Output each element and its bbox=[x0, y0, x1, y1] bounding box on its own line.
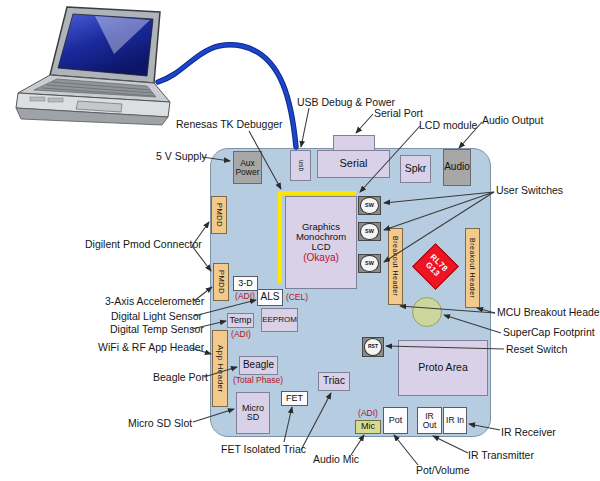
label-lcd-module: LCD module bbox=[419, 119, 477, 131]
label-audio-mic: Audio Mic bbox=[313, 453, 359, 465]
label-3axis-accelerometer: 3-Axis Accelerometer bbox=[105, 295, 204, 307]
beagle-connector: Beagle bbox=[239, 356, 278, 375]
temp-sensor: Temp bbox=[227, 313, 254, 328]
label-ir-receiver: IR Receiver bbox=[501, 426, 556, 438]
fet: FET bbox=[281, 391, 308, 406]
label-pot-volume-arrow bbox=[394, 435, 418, 465]
label-pot-volume: Pot/Volume bbox=[416, 464, 470, 476]
label-beagle-port: Beagle Port bbox=[153, 371, 208, 383]
breakout-header-1: Breakout Header bbox=[388, 228, 403, 305]
aux-power: Aux Power bbox=[233, 151, 262, 184]
note-cel-als: (CEL) bbox=[252, 292, 342, 302]
label-usb-debug-power-arrow bbox=[301, 108, 309, 147]
label-mcu-breakout-headers: MCU Breakout Headers bbox=[497, 306, 600, 318]
laptop-illustration bbox=[16, 7, 170, 125]
label-digital-temp-sensor: Digital Temp Sensor bbox=[110, 323, 204, 335]
diagram-canvas: usbSerialSpkrAudioAux PowerPMDDPMDDApp H… bbox=[0, 0, 600, 481]
mic: Mic bbox=[355, 420, 381, 434]
usb-cable bbox=[158, 45, 296, 147]
note-adi-mic: (ADI) bbox=[323, 408, 413, 418]
triac: Triac bbox=[318, 372, 350, 391]
ir-in: IR In bbox=[443, 407, 467, 434]
audio-jack: Audio bbox=[443, 149, 471, 186]
proto-area: Proto Area bbox=[398, 340, 488, 396]
note-adi-temp: (ADI) bbox=[196, 329, 286, 339]
user-switch-3: SW bbox=[358, 254, 381, 273]
label-serial-port-arrow bbox=[356, 114, 373, 133]
label-5v-supply: 5 V Supply bbox=[156, 150, 207, 162]
reset-button: RST bbox=[362, 337, 384, 357]
label-wifi-rf-app-header: WiFi & RF App Header bbox=[98, 341, 204, 353]
app-header: App Header bbox=[212, 330, 228, 407]
label-ir-transmitter-arrow bbox=[433, 436, 468, 453]
usb-connector: usb bbox=[290, 150, 311, 181]
micro-sd: Micro SD bbox=[236, 392, 270, 434]
label-ir-transmitter: IR Transmitter bbox=[468, 449, 534, 461]
label-serial-port: Serial Port bbox=[374, 107, 423, 119]
usb-cable-outline bbox=[158, 45, 296, 147]
label-audio-output: Audio Output bbox=[482, 114, 543, 126]
label-digital-light-sensor: Digital Light Sensor bbox=[111, 310, 202, 322]
serial-connector: Serial bbox=[317, 150, 390, 178]
ir-out: IR Out bbox=[417, 407, 442, 434]
label-supercap-footprint: SuperCap Footprint bbox=[503, 326, 595, 338]
serial-port-tab bbox=[333, 135, 375, 151]
label-reset-switch: Reset Switch bbox=[506, 343, 567, 355]
label-renesas-tk-debugger: Renesas TK Debugger bbox=[176, 118, 283, 130]
label-audio-mic-arrow bbox=[351, 435, 364, 455]
lcd: GraphicsMonochrom LCD(Okaya) bbox=[285, 196, 357, 289]
accelerometer-3d: 3-D bbox=[233, 276, 258, 291]
user-switch-1: SW bbox=[358, 196, 381, 215]
breakout-header-2: Breakout Header bbox=[465, 228, 480, 308]
label-user-switches: User Switches bbox=[496, 184, 563, 196]
speaker: Spkr bbox=[400, 155, 431, 183]
label-digilent-pmod: Digilent Pmod Connector bbox=[85, 238, 202, 250]
pmod-connector-1: PMDD bbox=[211, 196, 227, 234]
label-fet-isolated-triac: FET Isolated Triac bbox=[221, 443, 306, 455]
label-micro-sd-slot: Micro SD Slot bbox=[128, 417, 192, 429]
supercap bbox=[412, 297, 442, 327]
note-total-phase: (Total Phase) bbox=[213, 375, 303, 385]
user-switch-2: SW bbox=[358, 222, 381, 241]
